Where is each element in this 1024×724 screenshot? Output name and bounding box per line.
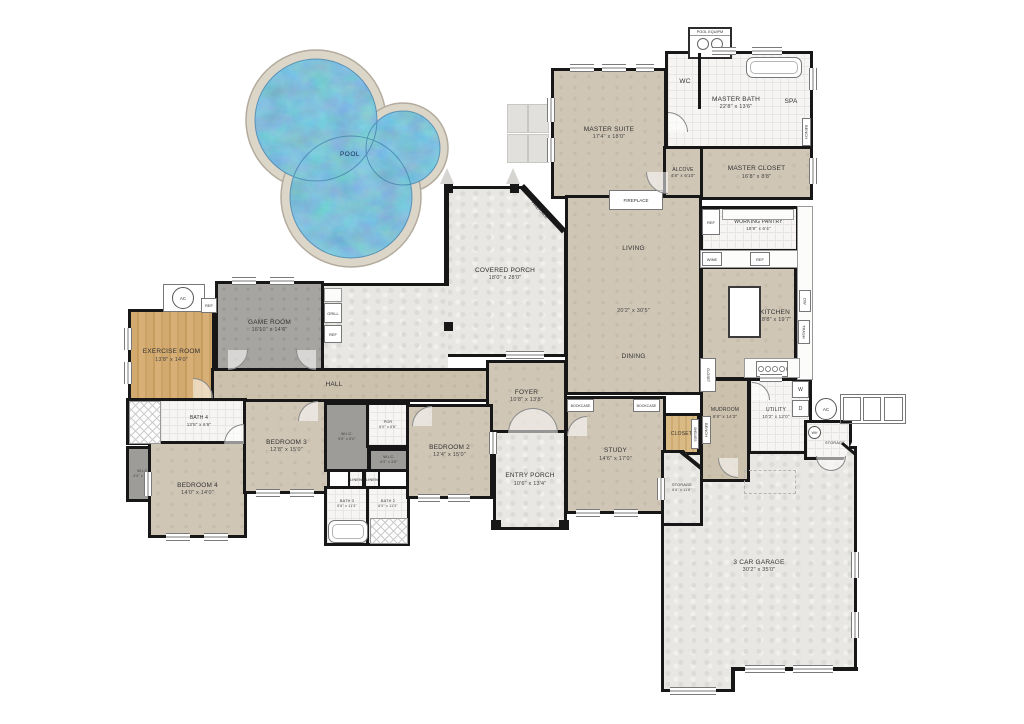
- room-pdr: PDR 6'0" x 6'8": [366, 402, 410, 448]
- window: [636, 64, 654, 72]
- pool-shape: [243, 48, 453, 270]
- room-master-closet: MASTER CLOSET 16'8" x 8'8": [700, 146, 813, 200]
- window: [809, 158, 817, 184]
- window: [547, 138, 555, 162]
- bench: BENCH: [802, 118, 811, 146]
- window: [851, 612, 859, 638]
- refrigerator: REF: [750, 252, 770, 266]
- wic2-label: W.I.C. 6'0" x 3'8": [380, 455, 398, 464]
- wic3-label: W.I.C. 5'6" x 8'0": [338, 432, 356, 441]
- grill: GRILL: [324, 303, 342, 323]
- dryer: D: [792, 400, 809, 417]
- study-label: STUDY 14'6" x 17'0": [599, 447, 632, 463]
- shower: [129, 401, 161, 444]
- bedroom2-label: BEDROOM 2 12'4" x 15'0": [429, 444, 470, 460]
- bookcase: BOOKCASE: [633, 399, 660, 412]
- window: [124, 362, 132, 384]
- pool-pump-icon: [697, 38, 709, 50]
- window: [144, 472, 152, 496]
- dining-closet: CLOSET: [700, 358, 716, 392]
- window: [448, 494, 470, 502]
- room-wic2: W.I.C. 6'0" x 3'8": [368, 448, 410, 472]
- living-label: LIVING: [568, 245, 699, 253]
- outdoor-cabinet: [324, 288, 342, 302]
- room-alcove: ALCOVE 4'8" x 6'10": [663, 146, 703, 200]
- patio-paver: [528, 104, 549, 133]
- pantry-counter: [722, 209, 794, 220]
- window: [712, 47, 736, 55]
- wc-label: WC: [672, 78, 698, 86]
- porch-column-icon: [440, 168, 454, 184]
- room-study: STUDY 14'6" x 17'0": [565, 396, 666, 514]
- room-entry-porch: ENTRY PORCH 10'6" x 13'4": [493, 430, 567, 530]
- room-wic3: W.I.C. 5'6" x 8'0": [324, 402, 370, 472]
- pantry-label: WORKING PANTRY 18'8" x 6'4": [721, 219, 796, 231]
- bedroom3-label: BEDROOM 3 12'8" x 15'0": [266, 439, 307, 455]
- window: [270, 277, 294, 285]
- window: [232, 277, 256, 285]
- bedroom4-label: BEDROOM 4 14'0" x 14'0": [177, 482, 218, 498]
- window: [547, 98, 555, 122]
- porch-post: [491, 520, 501, 530]
- porch-post: [510, 184, 519, 193]
- window: [256, 489, 280, 497]
- foyer-label: FOYER 10'8" x 13'8": [489, 389, 564, 405]
- window: [489, 432, 497, 454]
- window: [166, 533, 190, 541]
- pool-equip-label: POOL EQUIPM: [690, 29, 730, 36]
- washer: W: [792, 381, 809, 398]
- room-hall: HALL: [211, 368, 490, 402]
- refrigerator: REF: [702, 209, 720, 235]
- master-closet-label: MASTER CLOSET 16'8" x 8'8": [728, 165, 786, 181]
- living-dims: 20'2" x 30'5": [568, 308, 699, 315]
- window: [752, 47, 782, 55]
- bench: BENCH: [702, 416, 711, 444]
- pdr-label: PDR 6'0" x 6'8": [379, 420, 397, 429]
- window: [290, 489, 314, 497]
- patio-paver: [507, 134, 528, 163]
- porch-post: [444, 322, 453, 331]
- porch-wall: [444, 186, 449, 286]
- ac-unit: AC: [172, 287, 194, 309]
- entry-porch-label: ENTRY PORCH 10'6" x 13'4": [505, 472, 554, 488]
- shelves: SHELVES: [691, 419, 699, 449]
- shower: [370, 518, 408, 544]
- exercise-label: EXERCISE ROOM 13'8" x 14'0": [143, 348, 201, 364]
- game-room-label: GAME ROOM 16'10" x 14'6": [248, 319, 291, 335]
- garage-ghost-cabinet: [744, 470, 796, 494]
- pool-label: POOL: [325, 151, 375, 158]
- porch-column-icon: [506, 168, 520, 184]
- bath2-label: BATH 2 6'0" x 11'3": [369, 499, 407, 508]
- storage-hall-label: STORAGE 6'6" x 11'8": [664, 483, 700, 492]
- floor-plan: POOL POOL EQUIPM 3 CAR GARAGE 30'2" x 35…: [0, 0, 1024, 724]
- bath4-label: BATH 4 13'8" x 6'6": [169, 415, 229, 427]
- window: [570, 64, 594, 72]
- bathtub: [328, 520, 368, 543]
- bathtub: [746, 57, 802, 78]
- porch-label: COVERED PORCH 18'0" x 28'0": [446, 267, 564, 283]
- room-bedroom4: BEDROOM 4 14'0" x 14'0": [148, 441, 247, 538]
- spa-label: SPA: [778, 98, 804, 106]
- master-suite-label: MASTER SUITE 17'4" x 18'0": [584, 126, 634, 142]
- utility-label: UTILITY 10'2" x 12'0": [755, 407, 797, 419]
- fireplace: FIREPLACE: [609, 190, 663, 210]
- garage-door: [745, 665, 785, 673]
- garage-wall: [731, 667, 735, 692]
- garage-label: 3 CAR GARAGE 30'2" x 35'0": [664, 559, 854, 575]
- window: [576, 509, 600, 517]
- wc-partition: [698, 53, 701, 109]
- hall-label: HALL: [314, 381, 354, 389]
- porch-post: [559, 520, 569, 530]
- dining-label: DINING: [568, 353, 699, 361]
- water-heater: WH: [808, 426, 821, 439]
- kitchen-island: [728, 286, 761, 338]
- garage-door: [793, 665, 833, 673]
- bath3-label: BATH 3 5'6" x 11'3": [327, 499, 367, 508]
- garage-door: [670, 687, 716, 695]
- window: [124, 328, 132, 350]
- window: [851, 552, 859, 578]
- ac-unit: AC: [815, 398, 837, 420]
- wine-fridge: WINE: [702, 252, 722, 266]
- study-closet-label: CLOSET: [671, 431, 692, 438]
- window: [418, 494, 440, 502]
- bookcase: BOOKCASE: [567, 399, 594, 412]
- mini-fridge: REF: [201, 298, 217, 313]
- room-living-dining: LIVING 20'2" x 30'5" DINING: [565, 195, 702, 395]
- patio-paver: [528, 134, 549, 163]
- outdoor-refrigerator: REF: [324, 325, 342, 343]
- pool-area: POOL: [243, 48, 453, 270]
- window: [506, 351, 544, 359]
- window: [614, 509, 638, 517]
- equipment-pad: [863, 397, 881, 421]
- window: [602, 64, 626, 72]
- window: [657, 478, 665, 500]
- trash-pullout: TRASH: [798, 320, 810, 344]
- equipment-pad: [884, 397, 903, 421]
- dishwasher: DW: [799, 290, 811, 312]
- porch-post: [444, 184, 453, 193]
- window: [760, 374, 782, 382]
- window: [809, 68, 817, 90]
- window: [204, 533, 228, 541]
- alcove-label: ALCOVE 4'8" x 6'10": [671, 167, 696, 179]
- patio-paver: [507, 104, 528, 133]
- master-bath-label: MASTER BATH 22'8" x 13'6": [696, 96, 776, 112]
- equipment-pad: [843, 397, 861, 421]
